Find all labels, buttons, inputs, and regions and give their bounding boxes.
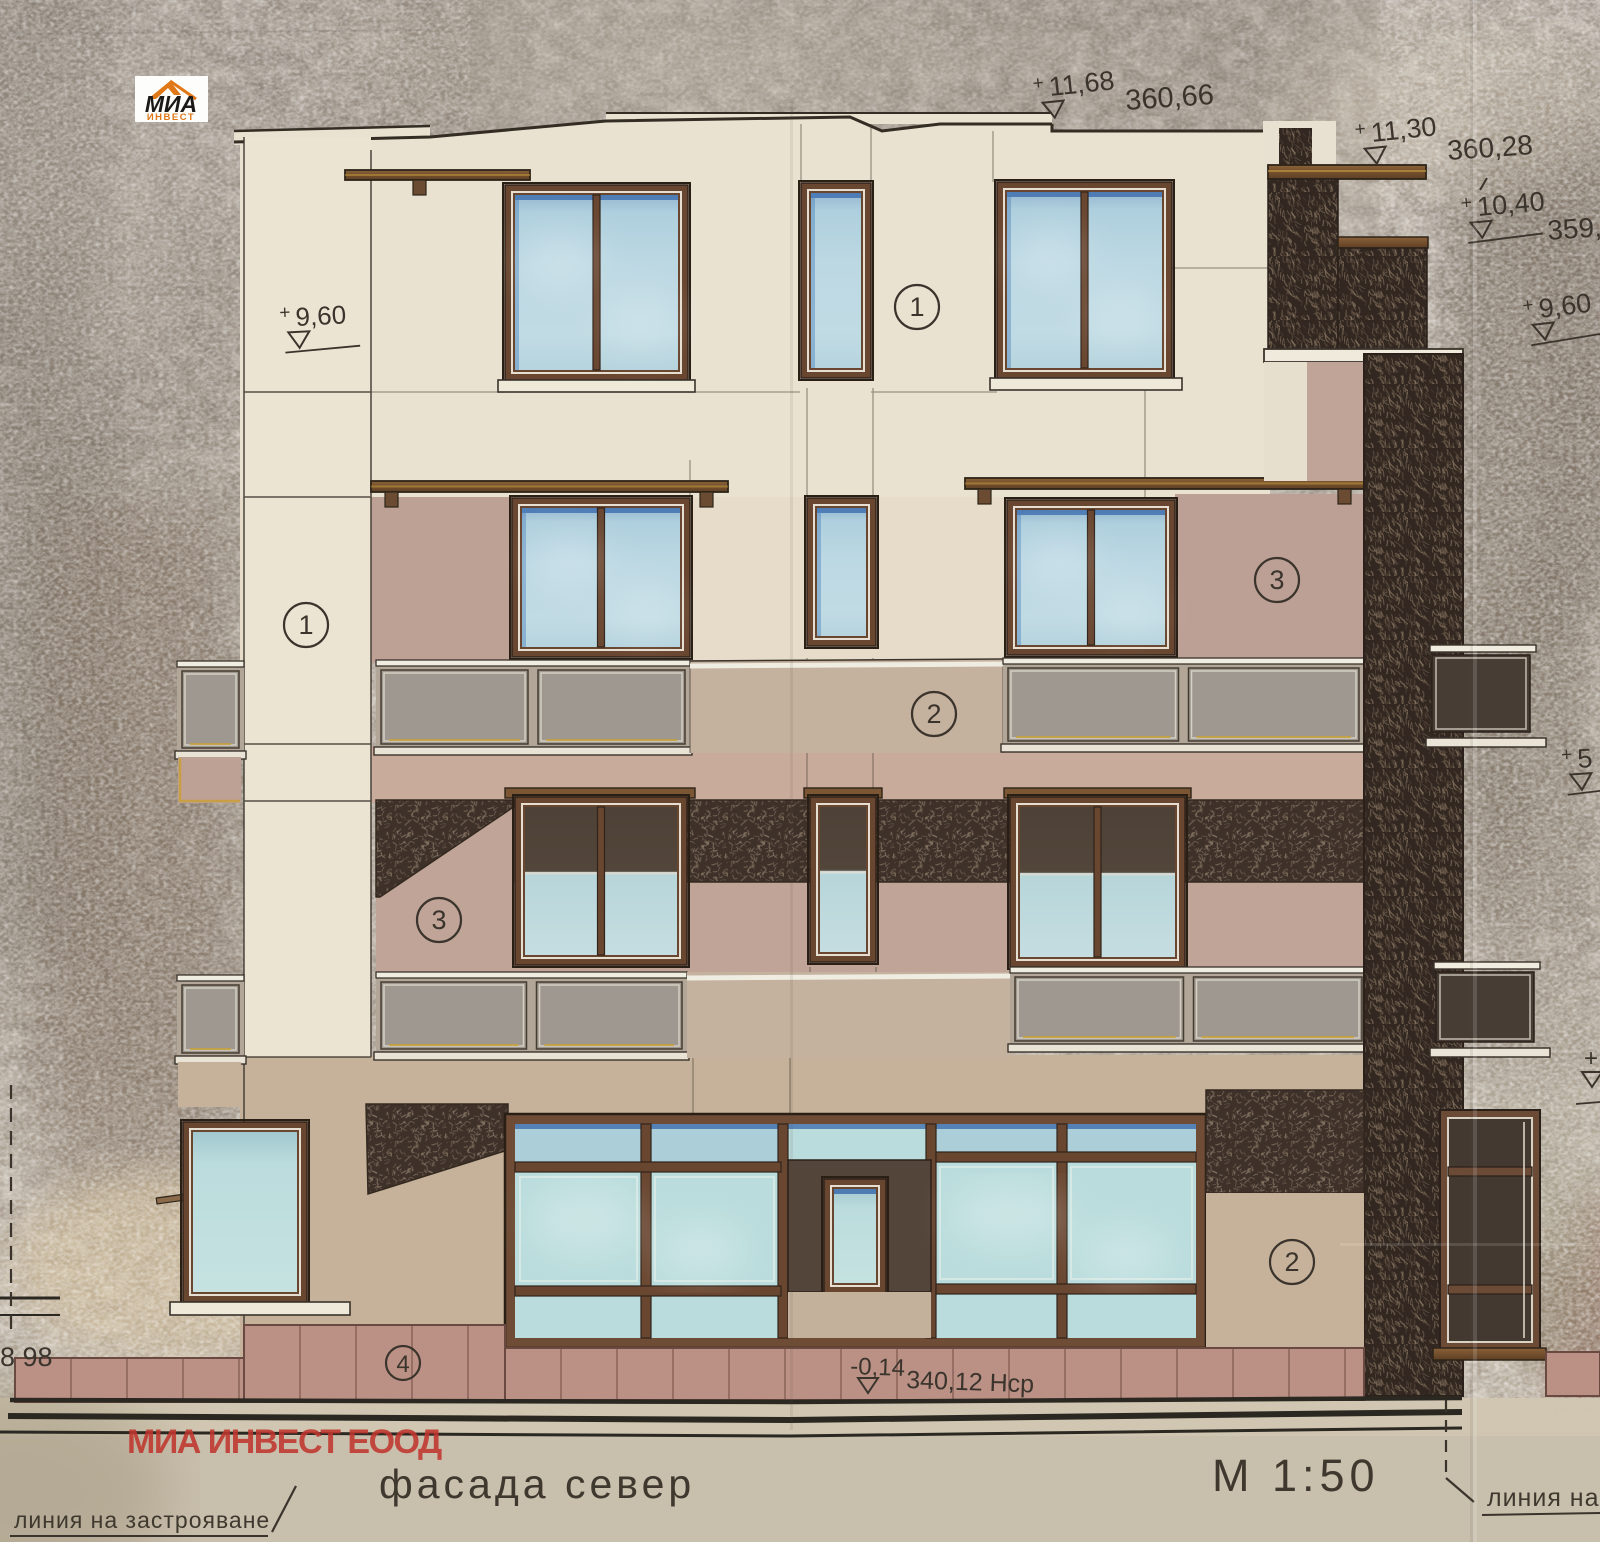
- svg-text:линия на: линия на: [1487, 1484, 1600, 1512]
- svg-text:9,60: 9,60: [295, 299, 347, 332]
- svg-text:+: +: [1032, 73, 1045, 95]
- svg-text:+: +: [1584, 1045, 1598, 1072]
- svg-text:1: 1: [909, 292, 924, 322]
- svg-text:+: +: [279, 302, 291, 324]
- svg-text:М 1:50: М 1:50: [1212, 1450, 1380, 1501]
- svg-text:3: 3: [1269, 565, 1284, 595]
- svg-text:фасада север: фасада север: [379, 1461, 695, 1507]
- svg-text:ИНВЕСТ: ИНВЕСТ: [147, 112, 195, 123]
- svg-text:9,60: 9,60: [1537, 288, 1593, 324]
- svg-text:МИА ИНВЕСТ ЕООД: МИА ИНВЕСТ ЕООД: [127, 1423, 442, 1461]
- svg-text:+: +: [1354, 119, 1367, 141]
- svg-text:5: 5: [1576, 743, 1593, 774]
- svg-text:2: 2: [1284, 1247, 1299, 1277]
- svg-text:360,28: 360,28: [1446, 129, 1534, 166]
- svg-text:8 98: 8 98: [0, 1342, 53, 1372]
- svg-text:340,12 Нср: 340,12 Нср: [906, 1366, 1035, 1398]
- svg-text:линия на застрояване: линия на застрояване: [14, 1507, 270, 1533]
- svg-text:1: 1: [298, 610, 313, 640]
- svg-text:359,3: 359,3: [1546, 210, 1600, 246]
- svg-text:+: +: [1560, 744, 1573, 766]
- svg-text:10,40: 10,40: [1476, 186, 1546, 222]
- svg-text:4: 4: [396, 1351, 409, 1378]
- svg-text:360,66: 360,66: [1124, 79, 1215, 117]
- svg-text:2: 2: [926, 699, 941, 729]
- svg-text:3: 3: [431, 905, 446, 935]
